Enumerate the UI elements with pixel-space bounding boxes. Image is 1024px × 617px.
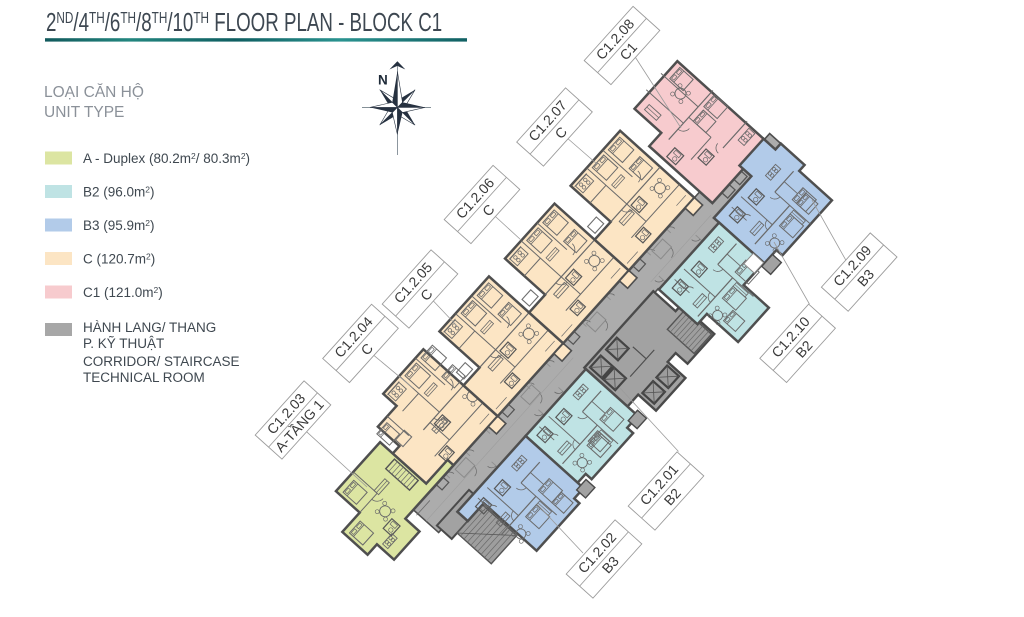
svg-text:C (120.7m2): C (120.7m2) xyxy=(83,252,155,267)
svg-text:2ND/4TH/6TH/8TH/10TH FLOOR PLA: 2ND/4TH/6TH/8TH/10TH FLOOR PLAN - BLOCK … xyxy=(46,8,442,37)
svg-text:A - Duplex (80.2m2/ 80.3m2): A - Duplex (80.2m2/ 80.3m2) xyxy=(83,151,250,166)
svg-text:B2 (96.0m2): B2 (96.0m2) xyxy=(83,185,155,200)
svg-text:UNIT TYPE: UNIT TYPE xyxy=(44,104,124,121)
svg-text:TECHNICAL ROOM: TECHNICAL ROOM xyxy=(83,370,205,385)
svg-text:N: N xyxy=(378,73,388,88)
svg-text:CORRIDOR/ STAIRCASE: CORRIDOR/ STAIRCASE xyxy=(83,354,240,369)
svg-text:B3 (95.9m2): B3 (95.9m2) xyxy=(83,218,155,233)
svg-text:P. KỸ THUẬT: P. KỸ THUẬT xyxy=(83,336,164,351)
svg-text:LOẠI CĂN HỘ: LOẠI CĂN HỘ xyxy=(44,84,144,101)
svg-text:HÀNH LANG/ THANG: HÀNH LANG/ THANG xyxy=(83,320,216,335)
svg-text:C1 (121.0m2): C1 (121.0m2) xyxy=(83,285,163,300)
